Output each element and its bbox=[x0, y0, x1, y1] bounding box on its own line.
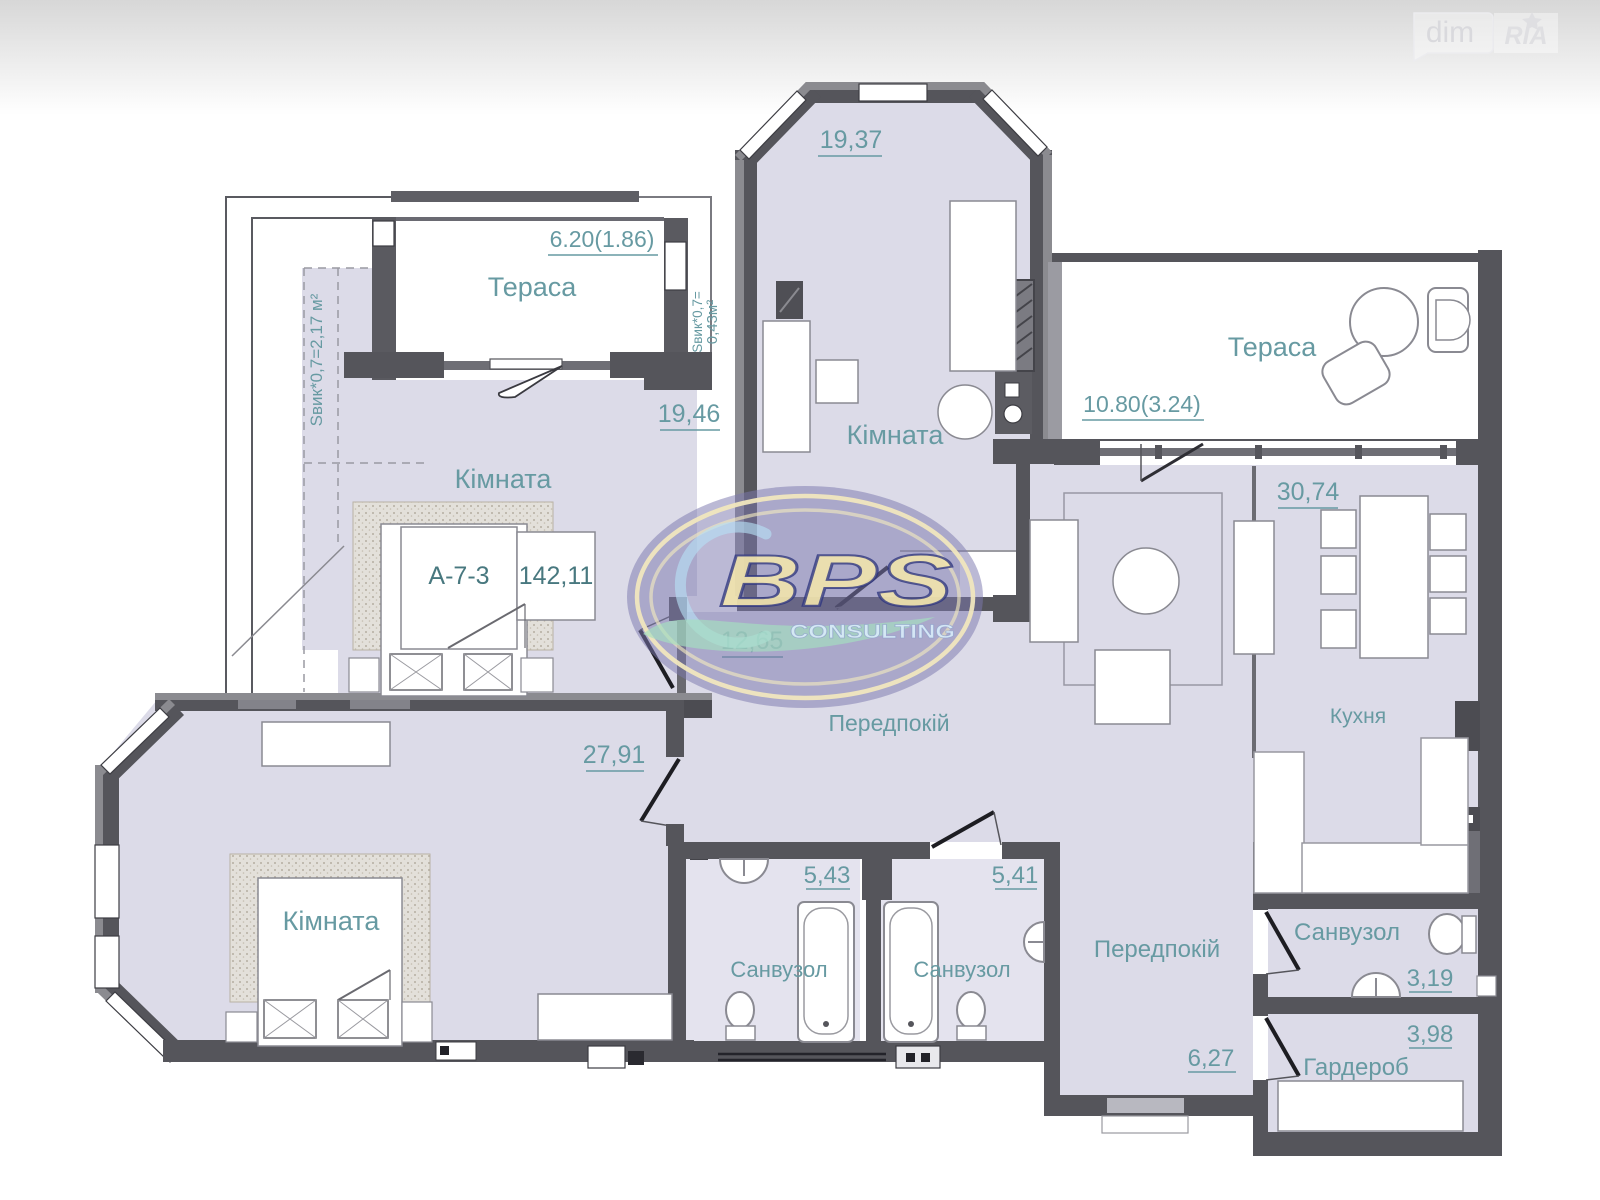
svg-text:5,41: 5,41 bbox=[992, 862, 1039, 889]
svg-text:27,91: 27,91 bbox=[583, 741, 646, 769]
svg-text:Кімната: Кімната bbox=[283, 906, 381, 936]
svg-text:19,46: 19,46 bbox=[658, 400, 721, 428]
svg-text:6.20(1.86): 6.20(1.86) bbox=[550, 226, 655, 252]
svg-text:Тераса: Тераса bbox=[1228, 332, 1318, 362]
svg-text:Sвик*0,7=: Sвик*0,7= bbox=[690, 291, 705, 353]
svg-text:CONSULTING: CONSULTING bbox=[790, 622, 955, 643]
svg-text:Передпокій: Передпокій bbox=[828, 710, 949, 736]
svg-text:142,11: 142,11 bbox=[519, 562, 594, 590]
svg-text:Передпокій: Передпокій bbox=[1094, 936, 1220, 963]
svg-text:А-7-3: А-7-3 bbox=[428, 562, 489, 590]
svg-text:19,37: 19,37 bbox=[820, 126, 883, 154]
svg-text:dim: dim bbox=[1426, 16, 1474, 49]
svg-text:3,98: 3,98 bbox=[1407, 1021, 1454, 1048]
svg-text:Кімната: Кімната bbox=[455, 464, 553, 494]
svg-text:BPS: BPS bbox=[719, 541, 953, 622]
svg-text:5,43: 5,43 bbox=[804, 862, 851, 889]
svg-text:0,43м²: 0,43м² bbox=[704, 300, 721, 345]
svg-text:Кімната: Кімната bbox=[847, 420, 945, 450]
svg-text:30,74: 30,74 bbox=[1277, 478, 1340, 506]
svg-text:Кухня: Кухня bbox=[1330, 705, 1386, 728]
svg-text:RIA: RIA bbox=[1504, 22, 1547, 50]
svg-text:3,19: 3,19 bbox=[1407, 965, 1454, 992]
svg-text:Sвик*0,7=2,17 м²: Sвик*0,7=2,17 м² bbox=[307, 293, 326, 426]
svg-text:Тераса: Тераса bbox=[488, 272, 578, 302]
svg-text:Санвузол: Санвузол bbox=[730, 957, 827, 982]
svg-text:Санвузол: Санвузол bbox=[913, 957, 1010, 982]
svg-text:6,27: 6,27 bbox=[1188, 1045, 1235, 1072]
svg-text:10.80(3.24): 10.80(3.24) bbox=[1083, 391, 1201, 417]
svg-text:Санвузол: Санвузол bbox=[1294, 919, 1400, 946]
svg-text:Гардероб: Гардероб bbox=[1303, 1054, 1409, 1081]
